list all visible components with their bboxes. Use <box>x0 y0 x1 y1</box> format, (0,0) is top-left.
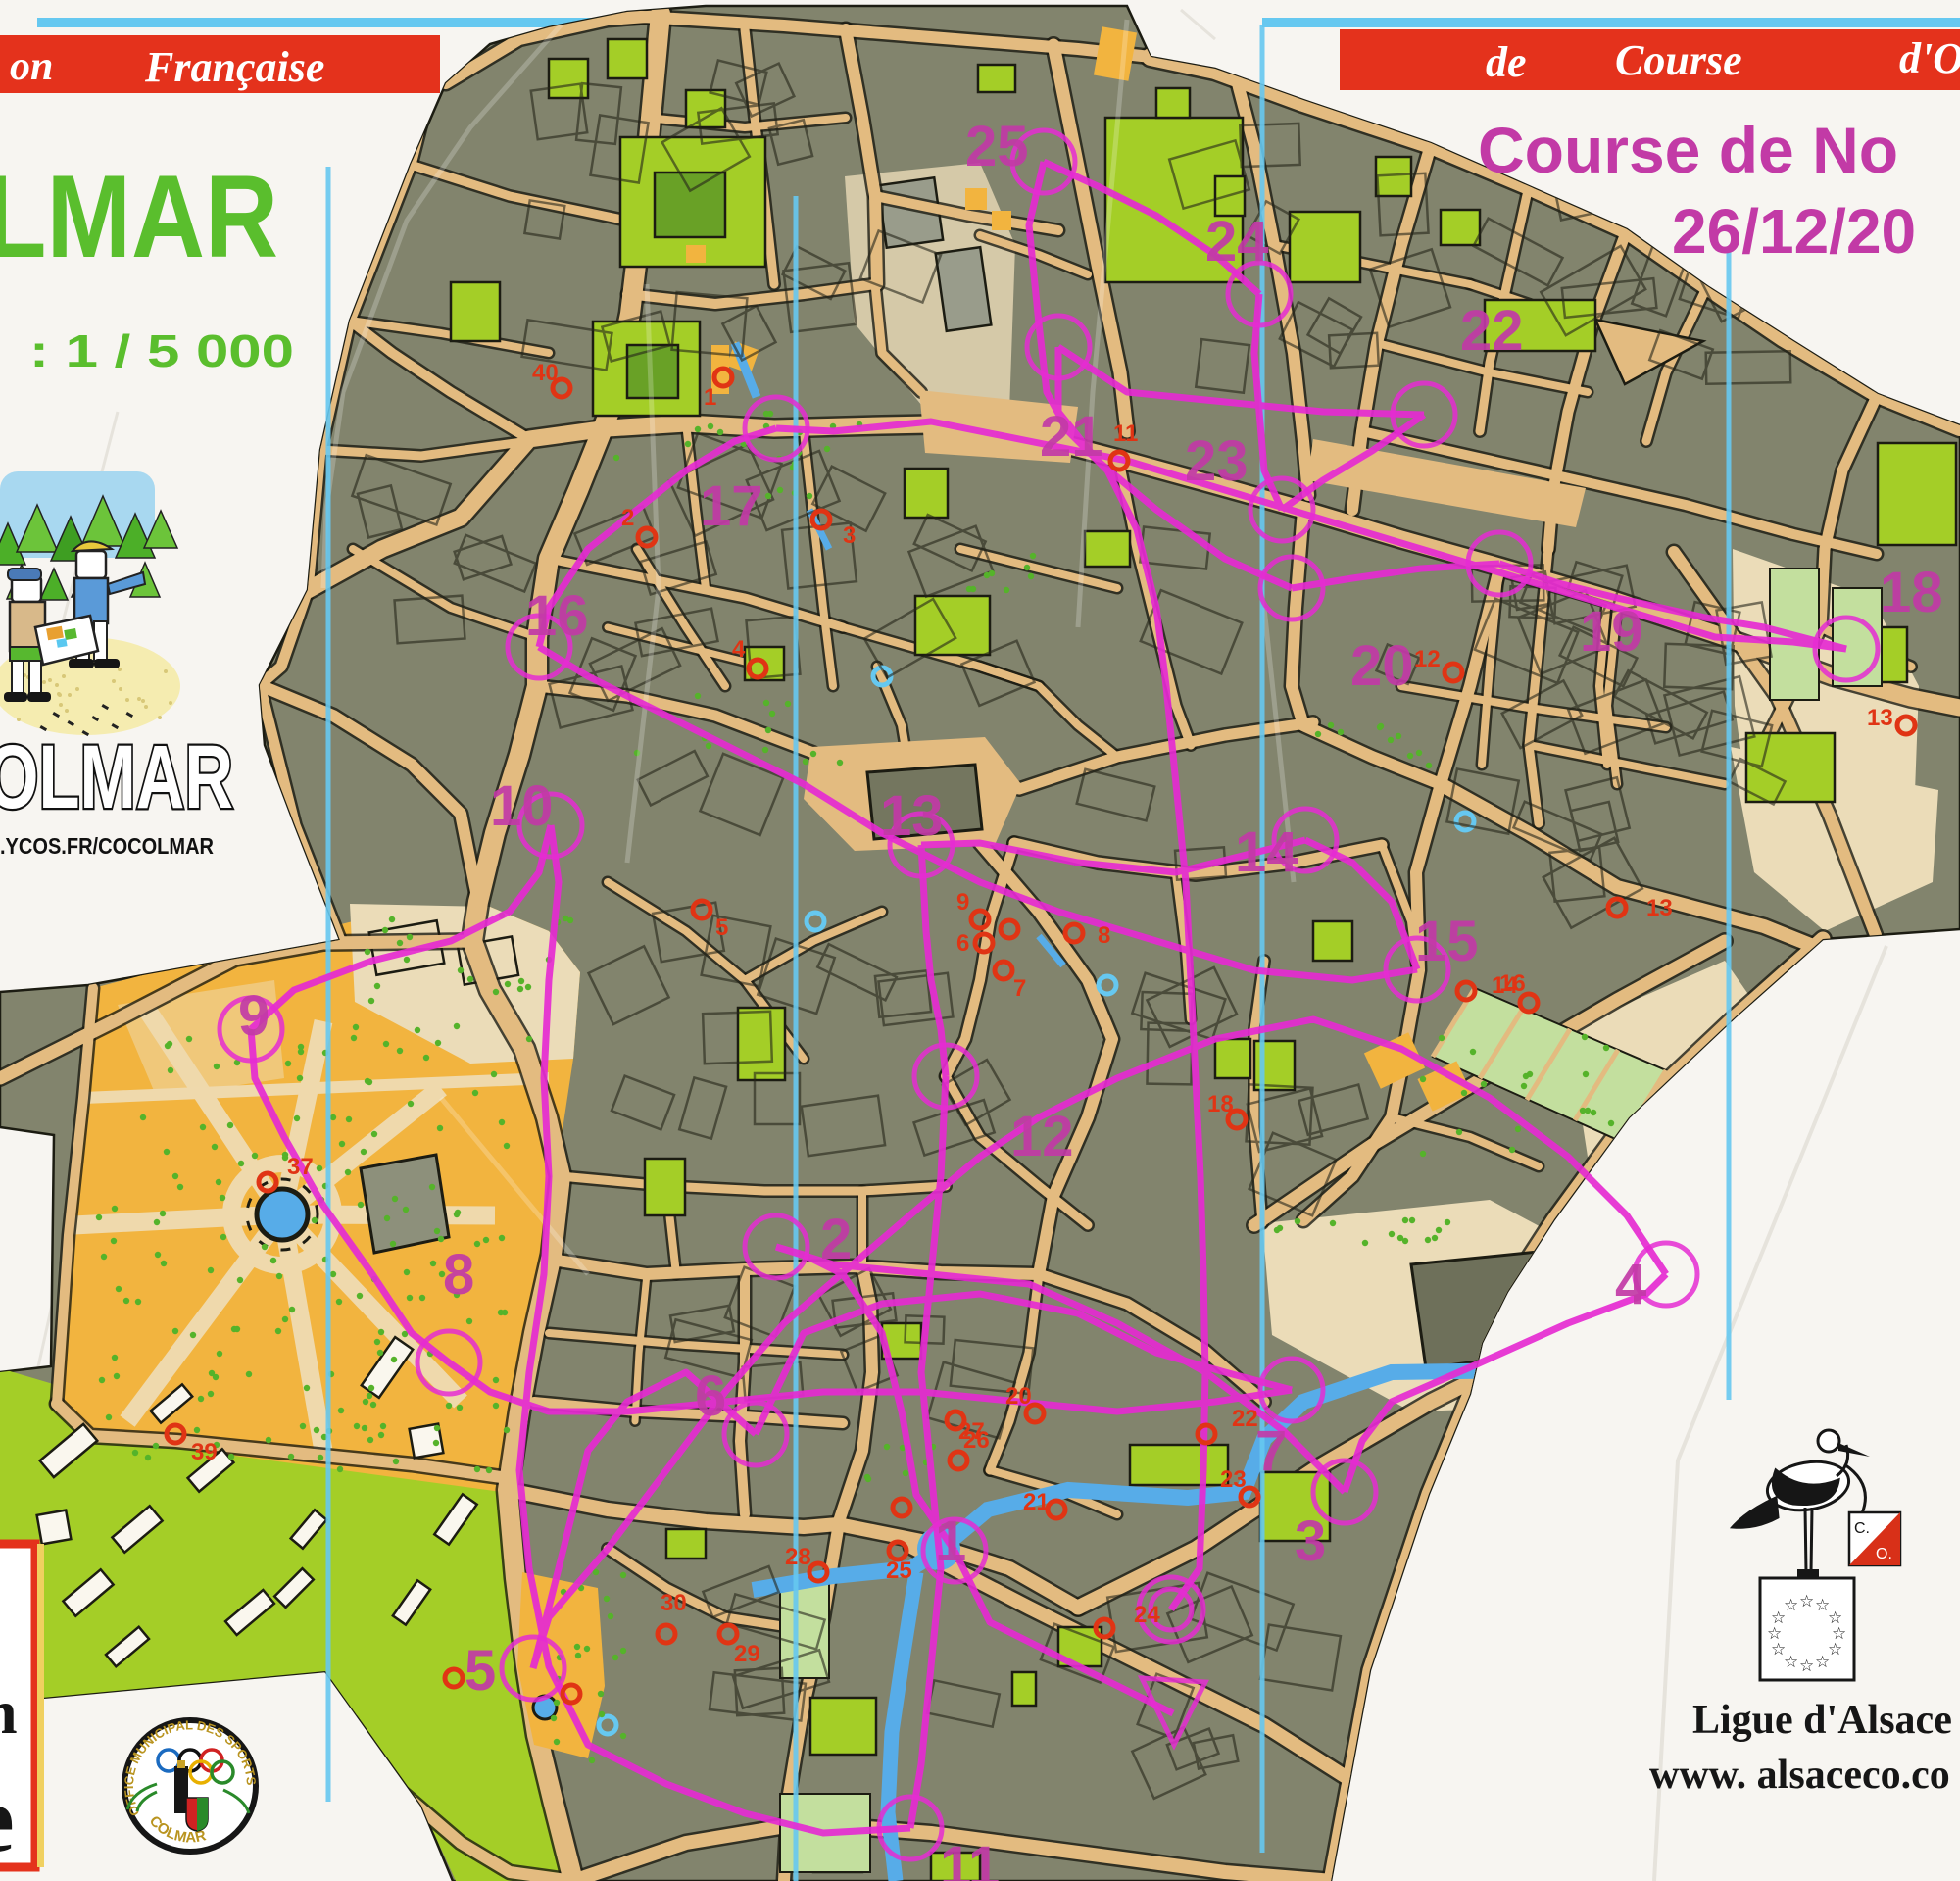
svg-text:13: 13 <box>880 784 944 848</box>
svg-text:24: 24 <box>1134 1602 1160 1628</box>
svg-text:26: 26 <box>963 1427 990 1454</box>
svg-text:Française: Française <box>144 43 324 91</box>
svg-text:26/12/20: 26/12/20 <box>1672 196 1916 267</box>
svg-text:7: 7 <box>1013 975 1026 1002</box>
svg-text:2: 2 <box>621 505 634 531</box>
svg-text:1: 1 <box>704 384 716 411</box>
svg-text:23: 23 <box>1185 429 1249 493</box>
svg-text:Ligue d'Alsace: Ligue d'Alsace <box>1692 1698 1952 1743</box>
svg-text:www. alsaceco.co: www. alsaceco.co <box>1649 1753 1950 1798</box>
svg-text:10: 10 <box>490 774 554 838</box>
svg-text:☆: ☆ <box>1815 1653 1830 1671</box>
svg-text:40: 40 <box>532 360 559 386</box>
svg-text:Course: Course <box>1615 36 1742 84</box>
svg-text:23: 23 <box>1220 1466 1247 1493</box>
svg-text:6: 6 <box>956 930 969 957</box>
svg-text:20: 20 <box>1350 634 1414 698</box>
svg-text:☆: ☆ <box>1799 1592 1814 1610</box>
svg-text:3: 3 <box>1295 1510 1326 1573</box>
svg-text:n: n <box>0 1677 18 1747</box>
svg-text:15: 15 <box>1415 910 1479 973</box>
svg-text:4: 4 <box>1615 1253 1646 1316</box>
svg-text:12: 12 <box>1010 1105 1074 1168</box>
svg-text:17: 17 <box>700 474 763 538</box>
svg-text:29: 29 <box>734 1641 760 1667</box>
svg-text:☆: ☆ <box>1784 1596 1798 1614</box>
svg-text:11: 11 <box>1113 421 1138 447</box>
svg-text:30: 30 <box>661 1590 687 1616</box>
svg-text:d'O: d'O <box>1899 34 1960 82</box>
svg-text:2: 2 <box>820 1208 852 1271</box>
svg-text:18: 18 <box>1207 1091 1234 1117</box>
svg-text:13: 13 <box>1867 705 1893 731</box>
svg-text:OLMAR: OLMAR <box>0 727 233 827</box>
svg-text:37: 37 <box>287 1154 314 1180</box>
svg-text:on: on <box>10 44 53 89</box>
svg-text:22: 22 <box>1232 1406 1258 1432</box>
svg-text:3: 3 <box>843 522 856 549</box>
svg-text:22: 22 <box>1460 299 1524 363</box>
svg-text:8: 8 <box>1098 922 1110 949</box>
svg-text:9: 9 <box>956 889 969 916</box>
svg-text:16: 16 <box>525 584 589 648</box>
svg-text:19: 19 <box>1580 600 1643 664</box>
svg-text:☆: ☆ <box>1828 1640 1842 1658</box>
svg-text:28: 28 <box>785 1544 811 1570</box>
svg-text:21: 21 <box>1040 405 1103 469</box>
svg-text:8: 8 <box>443 1243 474 1307</box>
svg-text:: 1 / 5 000: : 1 / 5 000 <box>29 325 294 376</box>
svg-text:5: 5 <box>715 915 728 941</box>
svg-text:☆: ☆ <box>1784 1653 1798 1671</box>
svg-text:LMAR: LMAR <box>0 151 278 282</box>
svg-text:☆: ☆ <box>1799 1657 1814 1675</box>
svg-text:1: 1 <box>935 1510 966 1573</box>
svg-text:13: 13 <box>1646 895 1673 921</box>
svg-text:11: 11 <box>940 1835 1000 1881</box>
svg-text:20: 20 <box>1005 1383 1032 1410</box>
svg-text:14: 14 <box>1492 972 1518 999</box>
svg-text:18: 18 <box>1880 561 1943 624</box>
svg-text:.YCOS.FR/COCOLMAR: .YCOS.FR/COCOLMAR <box>0 833 214 859</box>
svg-text:e: e <box>0 1766 15 1871</box>
svg-text:O.: O. <box>1876 1546 1892 1562</box>
svg-text:5: 5 <box>465 1639 496 1703</box>
svg-text:Course de No: Course de No <box>1478 114 1898 186</box>
svg-text:de: de <box>1486 38 1527 86</box>
svg-text:9: 9 <box>238 984 269 1048</box>
svg-text:6: 6 <box>695 1364 726 1428</box>
svg-text:25: 25 <box>965 115 1029 178</box>
svg-text:24: 24 <box>1205 210 1269 273</box>
svg-text:14: 14 <box>1235 820 1298 884</box>
svg-text:12: 12 <box>1414 646 1441 672</box>
svg-text:21: 21 <box>1023 1489 1050 1515</box>
svg-text:7: 7 <box>1255 1419 1287 1483</box>
svg-text:4: 4 <box>732 636 746 663</box>
svg-text:39: 39 <box>191 1439 218 1465</box>
svg-text:25: 25 <box>886 1558 912 1584</box>
svg-text:C.: C. <box>1854 1520 1870 1537</box>
